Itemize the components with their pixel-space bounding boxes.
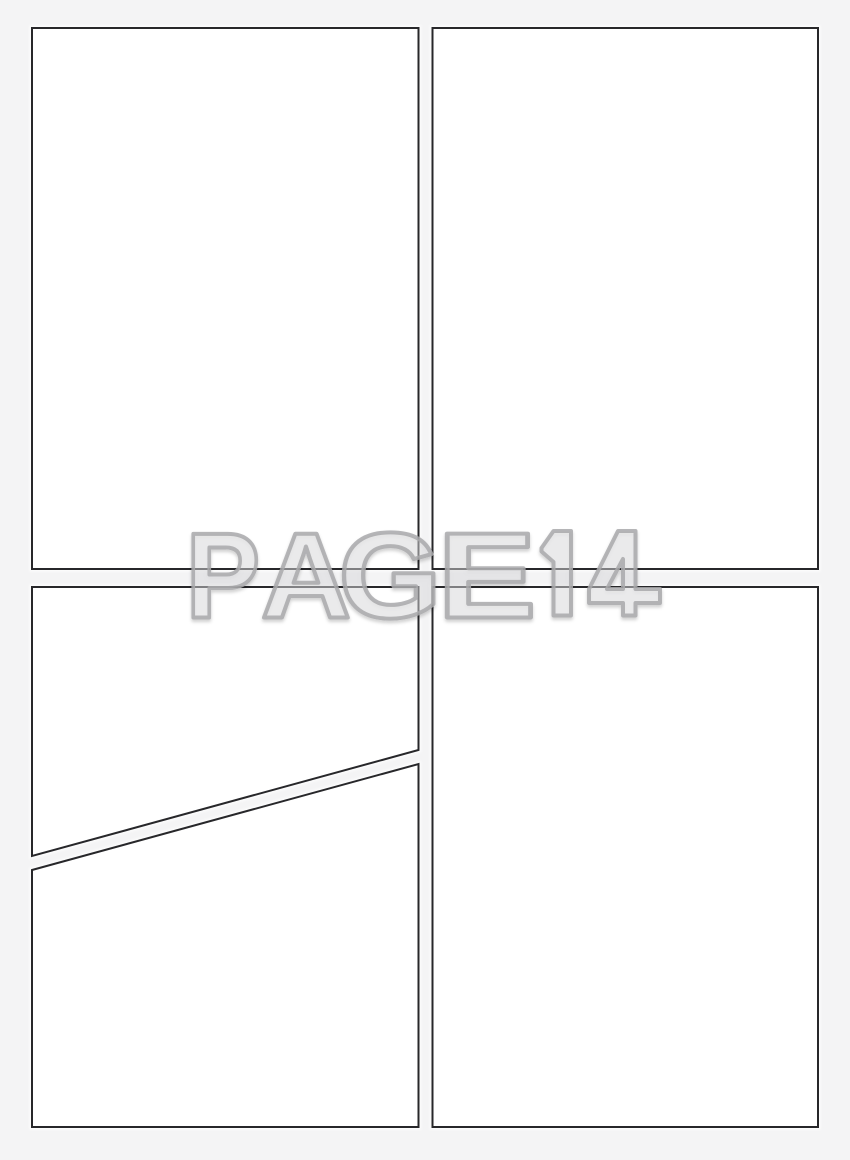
svg-text:E: E (437, 508, 536, 644)
svg-text:P: P (186, 508, 260, 644)
svg-text:G: G (339, 508, 442, 644)
svg-text:A: A (261, 508, 351, 644)
